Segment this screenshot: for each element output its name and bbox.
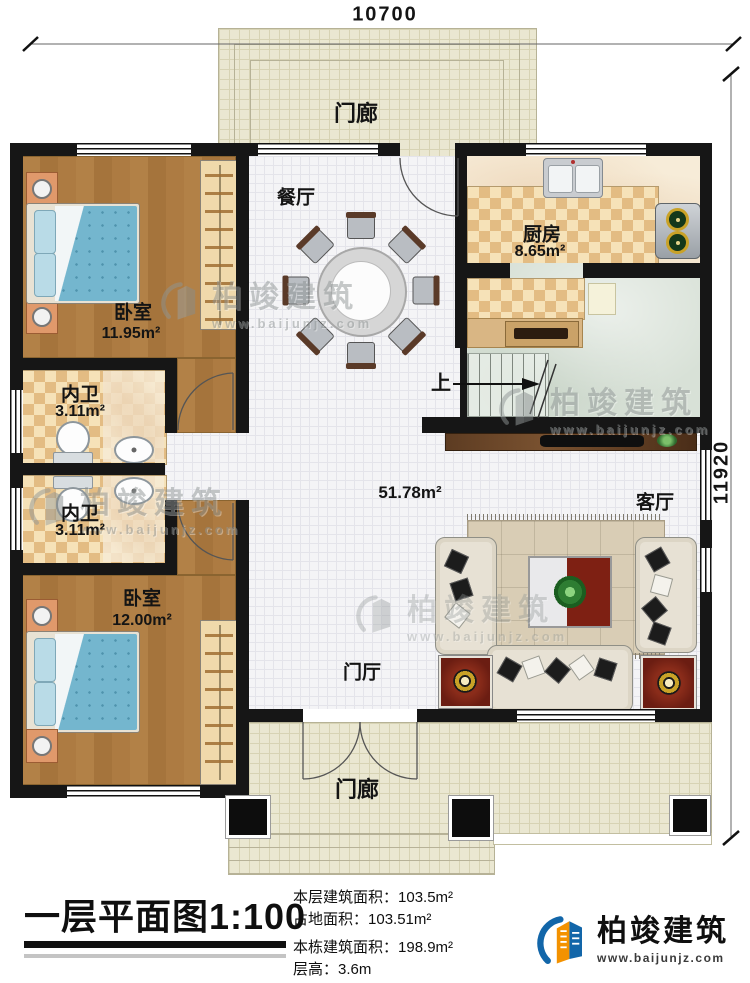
wall <box>10 358 177 370</box>
room-label-porch-top: 门廊 <box>334 96 378 128</box>
wall <box>249 709 303 722</box>
toilet <box>56 421 90 456</box>
wall <box>236 500 249 785</box>
title-underline-light <box>24 954 286 958</box>
brand-url: www.baijunjz.com <box>597 951 729 965</box>
area-label-bath1: 3.11m² <box>55 403 105 421</box>
wall <box>10 785 67 798</box>
window <box>10 488 23 550</box>
sink <box>114 477 154 505</box>
stairs-up-label: 上 <box>431 367 451 396</box>
wall <box>417 709 517 722</box>
window <box>517 709 655 722</box>
nightstand <box>26 729 58 763</box>
info-total-area: 本栋建筑面积：198.9m² <box>293 936 453 957</box>
wall <box>655 709 712 722</box>
wall <box>583 263 700 278</box>
brand-logo: 柏竣建筑 www.baijunjz.com <box>537 912 729 970</box>
door-leaf-wall <box>236 372 249 433</box>
room-label-dining: 餐厅 <box>277 183 315 210</box>
room-label-bedroom1: 卧室 <box>114 298 152 325</box>
end-table-right <box>641 656 696 710</box>
window <box>77 143 191 156</box>
wall <box>10 143 23 390</box>
window <box>700 548 712 592</box>
title-underline <box>24 941 286 948</box>
info-land-area: 占地面积：103.51m² <box>293 908 431 929</box>
porch-bottom-steps <box>228 833 495 875</box>
nightstand <box>26 300 58 334</box>
brand-logo-icon <box>537 912 591 970</box>
stair-sideboard <box>505 321 579 347</box>
wall <box>700 520 712 548</box>
area-label-kitchen: 8.65m² <box>515 243 566 261</box>
bed-bedroom1 <box>26 203 140 304</box>
dining-table-top <box>331 261 391 321</box>
nightstand <box>26 172 58 206</box>
dining-chair <box>347 216 375 239</box>
kitchen-sink <box>543 158 603 198</box>
wall <box>460 348 467 417</box>
stairs <box>467 353 549 417</box>
coffee-table <box>528 556 612 628</box>
porch-column <box>452 799 490 837</box>
room-label-bedroom2: 卧室 <box>123 584 161 611</box>
corridor1-floor <box>177 358 236 433</box>
wall <box>165 500 177 575</box>
end-table-left <box>439 656 492 708</box>
dining-chair <box>287 277 310 305</box>
wall <box>10 463 165 475</box>
kitchen-door-mat <box>588 283 616 315</box>
tv <box>540 435 644 447</box>
wall <box>700 143 712 450</box>
area-label-bedroom2: 12.00m² <box>112 612 172 630</box>
wall <box>455 143 467 348</box>
floor-plan-canvas: 柏竣建筑www.baijunjz.com 柏竣建筑www.baijunjz.co… <box>0 0 750 983</box>
wardrobe-bedroom1 <box>200 160 238 330</box>
wall <box>455 263 510 278</box>
window <box>526 143 646 156</box>
tv-feature-wall <box>422 417 700 433</box>
porch-column <box>673 799 707 832</box>
wall <box>236 143 249 372</box>
porch-column <box>229 799 267 835</box>
dining-chair <box>413 277 436 305</box>
brand-name: 柏竣建筑 <box>597 917 729 947</box>
room-label-porch-bottom: 门廊 <box>335 772 379 804</box>
area-label-hall: 51.78m² <box>378 483 441 503</box>
stove <box>655 203 701 259</box>
dining-chair <box>347 342 375 365</box>
sink <box>114 436 154 464</box>
info-floor-area: 本层建筑面积：103.5m² <box>293 886 453 907</box>
room-label-living: 客厅 <box>636 488 674 515</box>
bed-bedroom2 <box>26 631 140 733</box>
plant-small <box>657 434 677 447</box>
wall <box>10 563 177 575</box>
info-floor-height: 层高：3.6m <box>293 958 371 979</box>
wall <box>10 550 23 798</box>
corridor2-floor <box>177 500 236 575</box>
window <box>10 390 23 453</box>
window <box>258 143 378 156</box>
wall <box>200 785 249 798</box>
wall <box>165 358 177 433</box>
area-label-bath2: 3.11m² <box>55 522 105 540</box>
porch-bottom-edge-strip <box>493 833 712 845</box>
window <box>67 785 200 798</box>
dimension-height-label: 11920 <box>711 440 734 505</box>
plant-coffee-table <box>553 575 587 609</box>
area-label-bedroom1: 11.95m² <box>102 325 161 343</box>
kitchen-lower-floor <box>467 278 585 320</box>
wardrobe-bedroom2 <box>200 620 238 785</box>
room-label-foyer: 门厅 <box>343 658 381 685</box>
plan-title: 一层平面图1:100 <box>24 888 306 940</box>
wall <box>700 592 712 722</box>
nightstand <box>26 599 58 633</box>
wall <box>458 143 526 156</box>
dimension-width-label: 10700 <box>352 4 418 27</box>
wall <box>378 143 400 156</box>
